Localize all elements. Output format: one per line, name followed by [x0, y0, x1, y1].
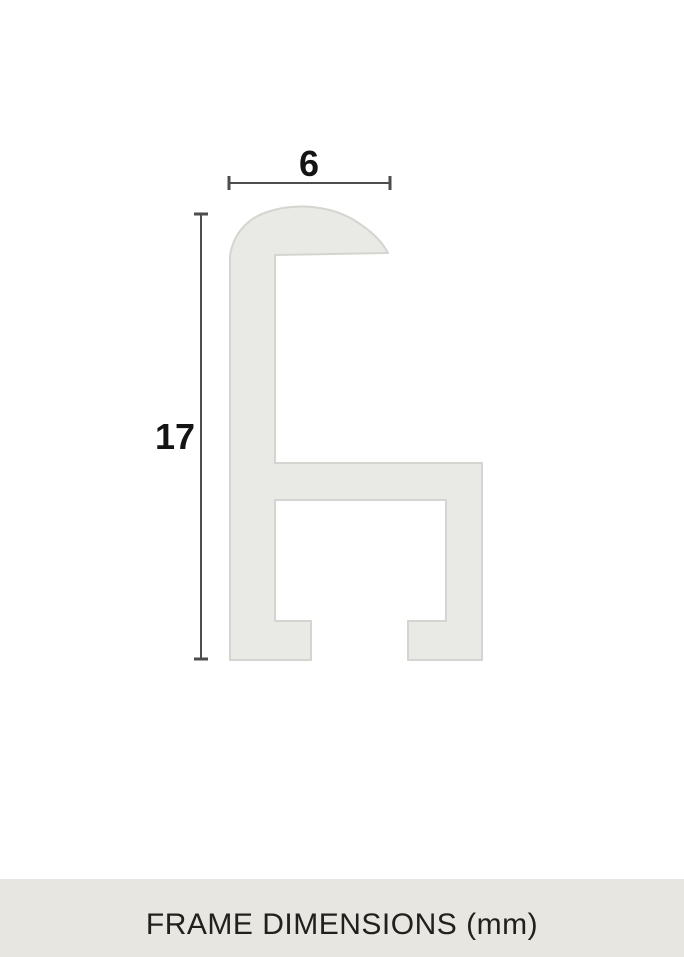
profile-diagram: 6 17	[0, 0, 684, 879]
height-dimension: 17	[155, 214, 208, 659]
footer-bar: FRAME DIMENSIONS (mm)	[0, 879, 684, 957]
frame-profile-shape	[230, 207, 482, 660]
frame-dimensions-page: { "drawing": { "type": "frame-profile-cr…	[0, 0, 684, 957]
footer-caption: FRAME DIMENSIONS (mm)	[146, 908, 538, 942]
width-dimension-label: 6	[299, 143, 319, 184]
profile-diagram-svg: 6 17	[0, 0, 684, 879]
width-dimension: 6	[229, 143, 390, 190]
height-dimension-label: 17	[155, 416, 195, 457]
